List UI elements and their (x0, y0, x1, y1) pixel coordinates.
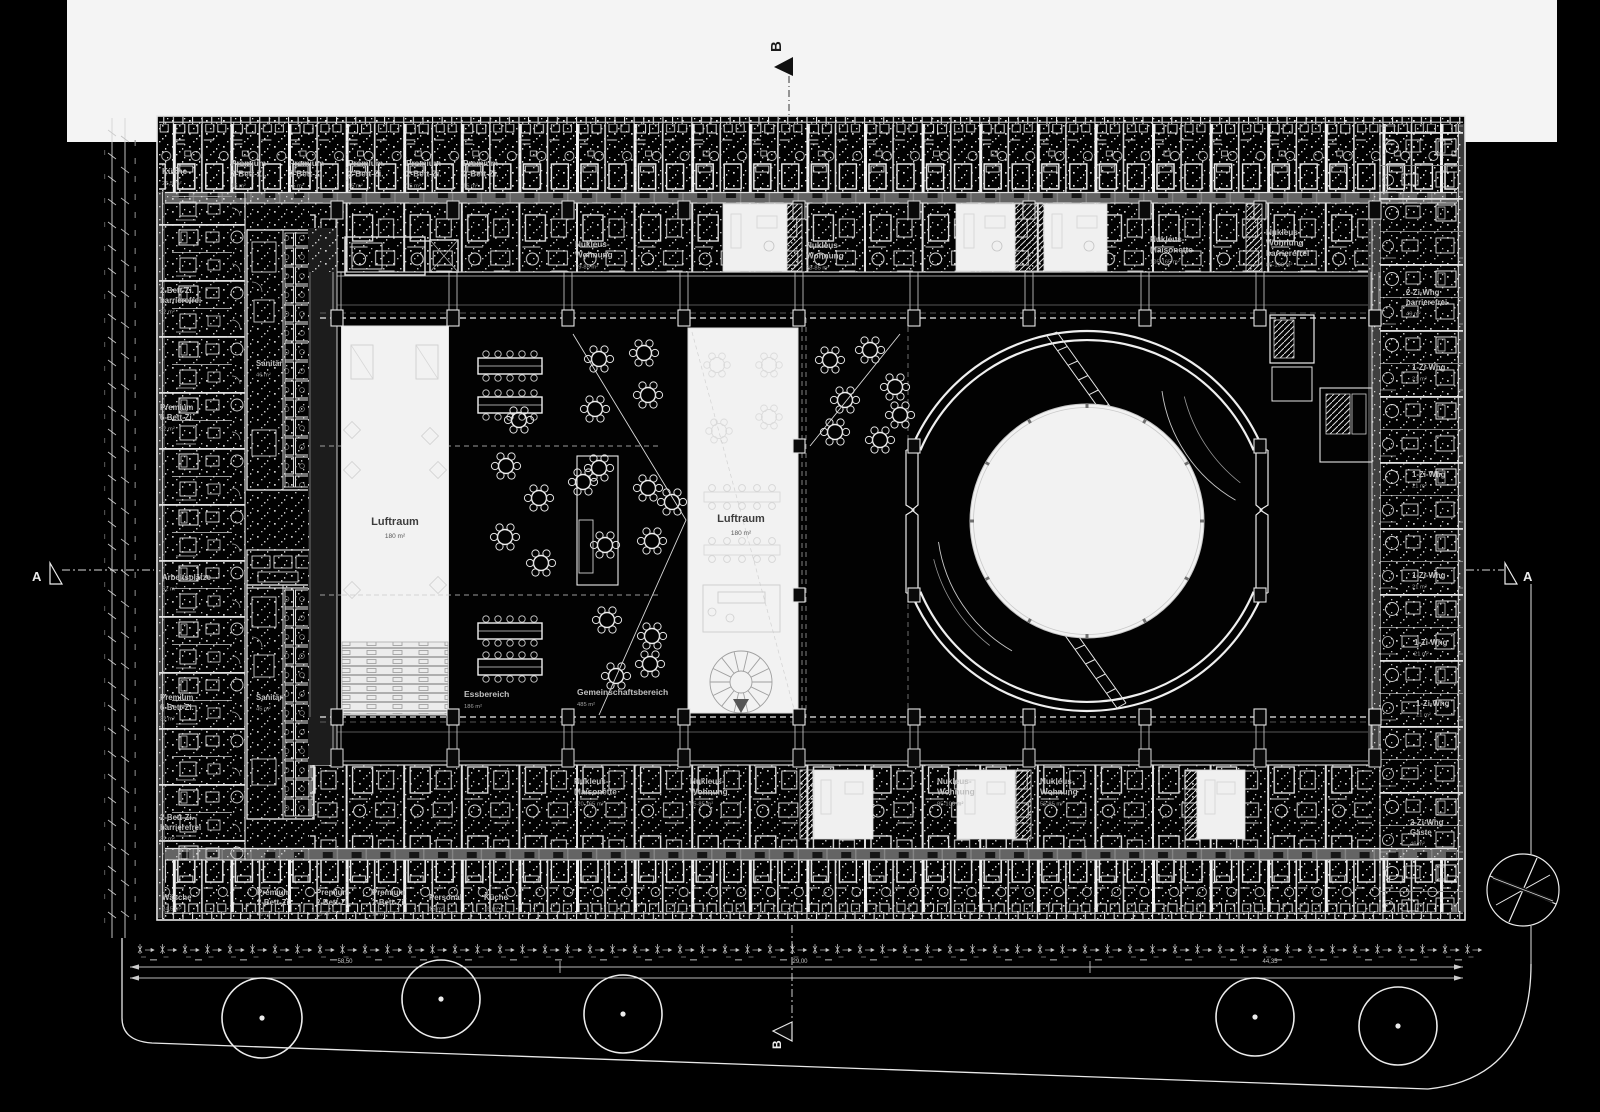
svg-text:15 m²: 15 m² (257, 912, 272, 918)
svg-text:2-Zi-Whg: 2-Zi-Whg (1410, 818, 1444, 827)
svg-text:15 m²: 15 m² (348, 183, 363, 189)
svg-text:2-Bett-Zi.: 2-Bett-Zi. (257, 898, 291, 907)
svg-text:Luftraum: Luftraum (717, 513, 765, 525)
svg-text:15 m²: 15 m² (289, 183, 304, 189)
svg-text:21 m²: 21 m² (1412, 585, 1427, 591)
svg-text:Maisonette: Maisonette (574, 787, 617, 796)
svg-text:15 m²: 15 m² (484, 907, 499, 913)
svg-text:6-Bett-Zi.: 6-Bett-Zi. (160, 703, 194, 712)
svg-text:Wohnung: Wohnung (1040, 787, 1078, 796)
svg-text:Wäsche: Wäsche (162, 893, 192, 902)
svg-text:Arbeitsplätze: Arbeitsplätze (162, 573, 212, 582)
svg-text:Nukleus-: Nukleus- (1040, 777, 1075, 786)
svg-text:Maisonette: Maisonette (1150, 245, 1193, 254)
svg-text:46 m²: 46 m² (256, 373, 271, 379)
svg-text:Premium: Premium (406, 159, 441, 168)
svg-text:32 m²: 32 m² (160, 310, 175, 316)
svg-text:Gemeinschaftsbereich: Gemeinschaftsbereich (577, 687, 668, 697)
svg-text:32 m²: 32 m² (160, 717, 175, 723)
svg-text:44,35: 44,35 (1262, 959, 1278, 965)
svg-text:2-Bett-Zi.: 2-Bett-Zi. (289, 169, 324, 178)
svg-text:barrierefrei: barrierefrei (1406, 298, 1447, 307)
svg-text:barrierefrei: barrierefrei (160, 823, 201, 832)
svg-text:Nukleus-: Nukleus- (575, 240, 610, 249)
svg-text:barrierefrei: barrierefrei (1266, 249, 1309, 258)
svg-text:52 m²: 52 m² (162, 587, 177, 593)
svg-text:Nukleus-: Nukleus- (1266, 228, 1301, 237)
svg-text:Premium: Premium (160, 693, 193, 702)
svg-text:B: B (770, 1040, 784, 1049)
svg-text:Küche: Küche (484, 893, 508, 902)
svg-text:180 m²: 180 m² (731, 530, 752, 537)
svg-text:186 m²: 186 m² (464, 704, 482, 710)
svg-text:32 m²: 32 m² (160, 427, 175, 433)
svg-text:Premium: Premium (372, 888, 405, 897)
svg-text:2-Bett-Zi.: 2-Bett-Zi. (348, 169, 383, 178)
svg-text:2-Bett-Zi.: 2-Bett-Zi. (372, 898, 406, 907)
svg-text:29,00: 29,00 (792, 959, 808, 965)
svg-text:Nukleus-: Nukleus- (690, 777, 725, 786)
svg-text:Premium: Premium (231, 159, 266, 168)
svg-text:15 m²: 15 m² (231, 183, 246, 189)
svg-text:45 m²: 45 m² (256, 707, 271, 713)
svg-text:Nukleus-: Nukleus- (574, 777, 609, 786)
svg-text:Personal: Personal (429, 893, 462, 902)
svg-text:Premium: Premium (257, 888, 290, 897)
svg-text:Sanitär: Sanitär (256, 359, 282, 368)
svg-text:2-Bett-Zi.: 2-Bett-Zi. (406, 169, 441, 178)
svg-text:79-85 m²: 79-85 m² (575, 264, 598, 270)
svg-text:Premium: Premium (348, 159, 383, 168)
svg-text:Premium: Premium (160, 403, 193, 412)
svg-text:21 m²: 21 m² (1412, 484, 1427, 490)
svg-text:46 m²: 46 m² (1410, 842, 1425, 848)
svg-text:1-Zi-Whg: 1-Zi-Whg (1416, 699, 1450, 708)
svg-text:15 m²: 15 m² (316, 912, 331, 918)
svg-text:6-Bett-Zi.: 6-Bett-Zi. (160, 413, 194, 422)
svg-text:49 m²: 49 m² (1406, 312, 1421, 318)
svg-text:1-Zi-Whg: 1-Zi-Whg (1412, 363, 1446, 372)
svg-text:2-Bett-Zi.: 2-Bett-Zi. (316, 898, 350, 907)
svg-text:26,5 m²: 26,5 m² (162, 181, 182, 187)
svg-text:Küche: Küche (162, 167, 187, 176)
svg-text:Essbereich: Essbereich (464, 689, 509, 699)
svg-text:Wohnung: Wohnung (575, 250, 613, 259)
svg-text:15 m²: 15 m² (463, 183, 478, 189)
svg-text:2-Bett-Zi.: 2-Bett-Zi. (231, 169, 266, 178)
svg-text:Wohnung: Wohnung (1266, 238, 1304, 247)
svg-text:55-85 m²: 55-85 m² (1040, 801, 1063, 807)
svg-text:24,5 m²: 24,5 m² (162, 907, 182, 913)
svg-text:32 m²: 32 m² (160, 837, 175, 843)
svg-text:Premium: Premium (316, 888, 349, 897)
svg-text:120-165 m²: 120-165 m² (574, 801, 604, 807)
svg-text:105-165 m²: 105-165 m² (1150, 259, 1180, 265)
svg-text:1-Zi-Whg: 1-Zi-Whg (1412, 470, 1446, 479)
svg-text:Nukleus-: Nukleus- (806, 241, 841, 250)
svg-text:58,50: 58,50 (337, 959, 353, 965)
svg-text:2-Bett-Zi.: 2-Bett-Zi. (160, 813, 194, 822)
svg-text:Premium: Premium (289, 159, 324, 168)
svg-text:1-Zi-Whg: 1-Zi-Whg (1414, 638, 1448, 647)
svg-text:55-85 m²: 55-85 m² (806, 265, 829, 271)
svg-text:Premium: Premium (463, 159, 498, 168)
svg-text:B: B (768, 41, 785, 52)
svg-text:1-Zi-Whg: 1-Zi-Whg (1412, 571, 1446, 580)
svg-text:Gäste: Gäste (1410, 828, 1432, 837)
svg-text:15 m²: 15 m² (372, 912, 387, 918)
svg-text:21 m²: 21 m² (1416, 713, 1431, 719)
svg-text:55-85 m²: 55-85 m² (690, 801, 713, 807)
svg-text:Luftraum: Luftraum (371, 516, 419, 528)
svg-text:Nukleus-: Nukleus- (937, 777, 972, 786)
svg-text:85-100 m²: 85-100 m² (937, 801, 963, 807)
svg-text:21 m²: 21 m² (1414, 652, 1429, 658)
svg-text:2-Bett-Zi.: 2-Bett-Zi. (160, 286, 194, 295)
svg-text:21 m²: 21 m² (1412, 377, 1427, 383)
svg-text:2-Bett-Zi.: 2-Bett-Zi. (463, 169, 498, 178)
svg-text:180 m²: 180 m² (385, 533, 406, 540)
svg-text:2-Zi-Whg: 2-Zi-Whg (1406, 288, 1440, 297)
svg-text:Sanitär: Sanitär (256, 693, 282, 702)
svg-text:Wohnung: Wohnung (806, 251, 844, 260)
svg-text:barrierefrei: barrierefrei (160, 296, 201, 305)
svg-text:Wohnung: Wohnung (937, 787, 975, 796)
svg-text:485 m²: 485 m² (577, 702, 595, 708)
svg-text:A: A (1523, 569, 1533, 584)
svg-text:Nukleus-: Nukleus- (1150, 235, 1185, 244)
svg-text:A: A (32, 569, 42, 584)
svg-text:15 m²: 15 m² (429, 907, 444, 913)
svg-text:Wohnung: Wohnung (690, 787, 728, 796)
svg-text:85-100 m²: 85-100 m² (1266, 263, 1292, 269)
svg-text:15 m²: 15 m² (406, 183, 421, 189)
